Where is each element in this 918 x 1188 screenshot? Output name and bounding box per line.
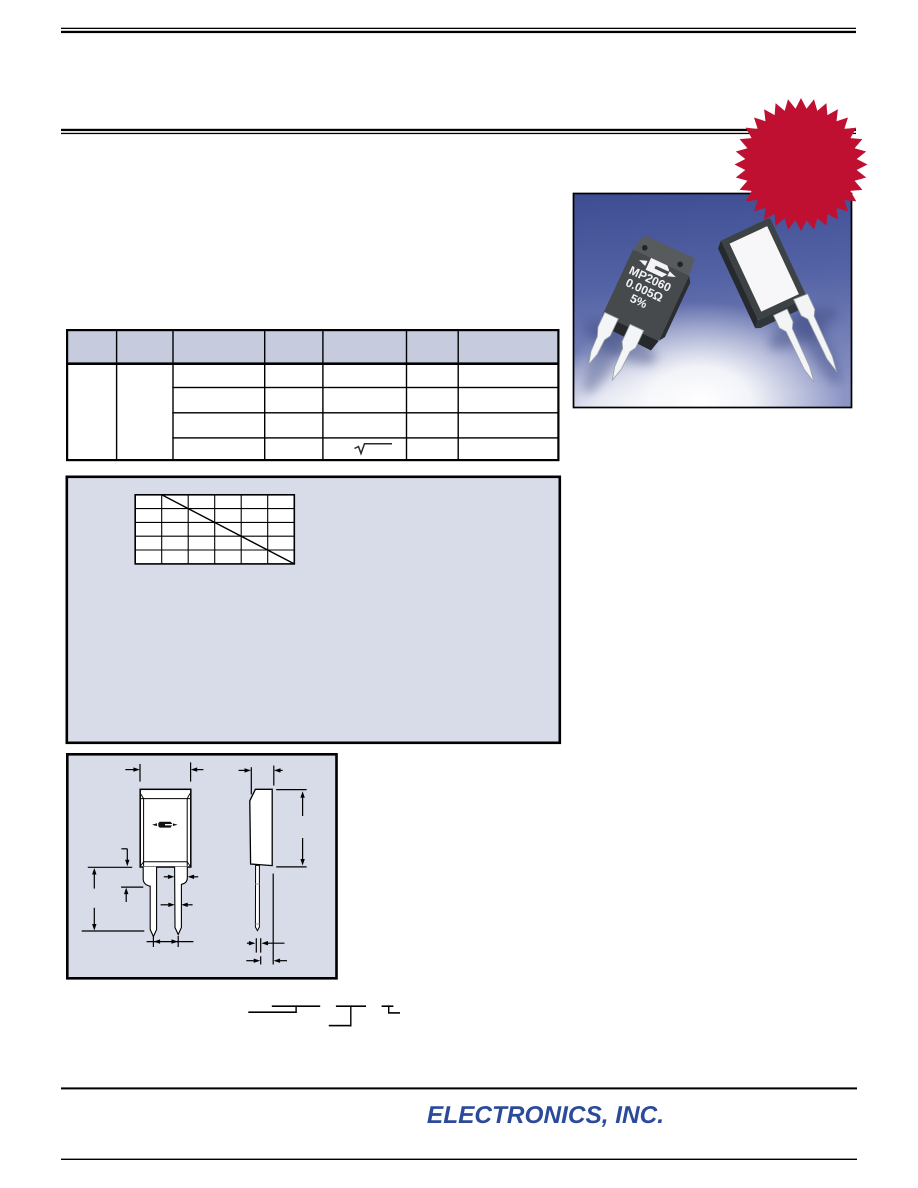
svg-text:ELECTRONICS, INC.: ELECTRONICS, INC. [427, 1102, 664, 1129]
